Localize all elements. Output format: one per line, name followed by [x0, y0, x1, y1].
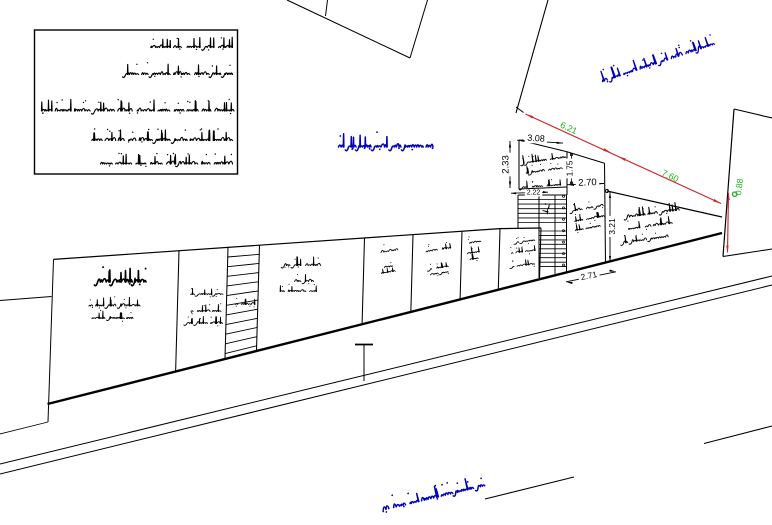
svg-text:3.21: 3.21: [607, 218, 617, 235]
svg-text:2.22: 2.22: [527, 190, 541, 197]
svg-text:3.08: 3.08: [527, 133, 545, 144]
svg-text:2.70: 2.70: [578, 177, 597, 189]
svg-text:2.33: 2.33: [501, 155, 512, 174]
svg-text:0.88: 0.88: [733, 178, 745, 196]
svg-text:1.75: 1.75: [566, 160, 575, 176]
